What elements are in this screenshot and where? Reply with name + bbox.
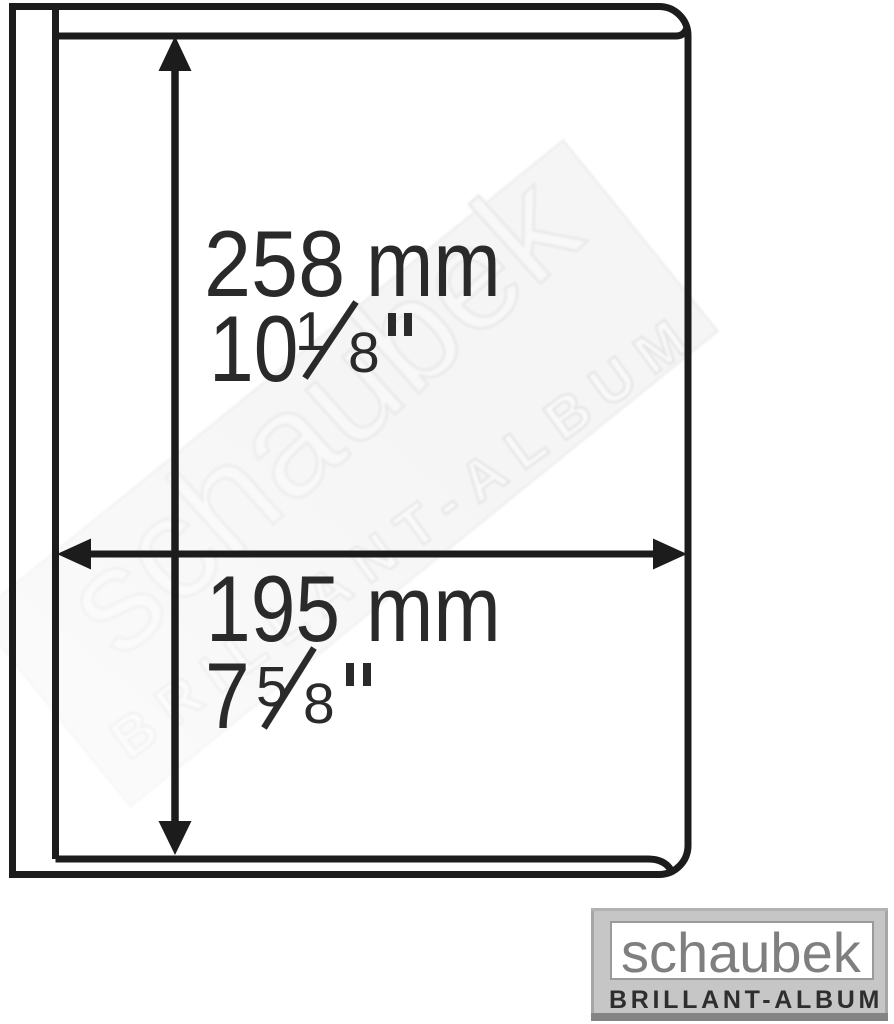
svg-text:schaubek: schaubek [621,921,862,984]
svg-text:10: 10 [209,296,298,401]
svg-text:mm: mm [366,556,501,661]
svg-text:mm: mm [366,211,501,316]
svg-text:7: 7 [205,643,250,748]
svg-text:8: 8 [303,672,335,736]
svg-text:BRILLANT-ALBUM: BRILLANT-ALBUM [609,986,883,1014]
svg-text:8: 8 [348,321,380,385]
